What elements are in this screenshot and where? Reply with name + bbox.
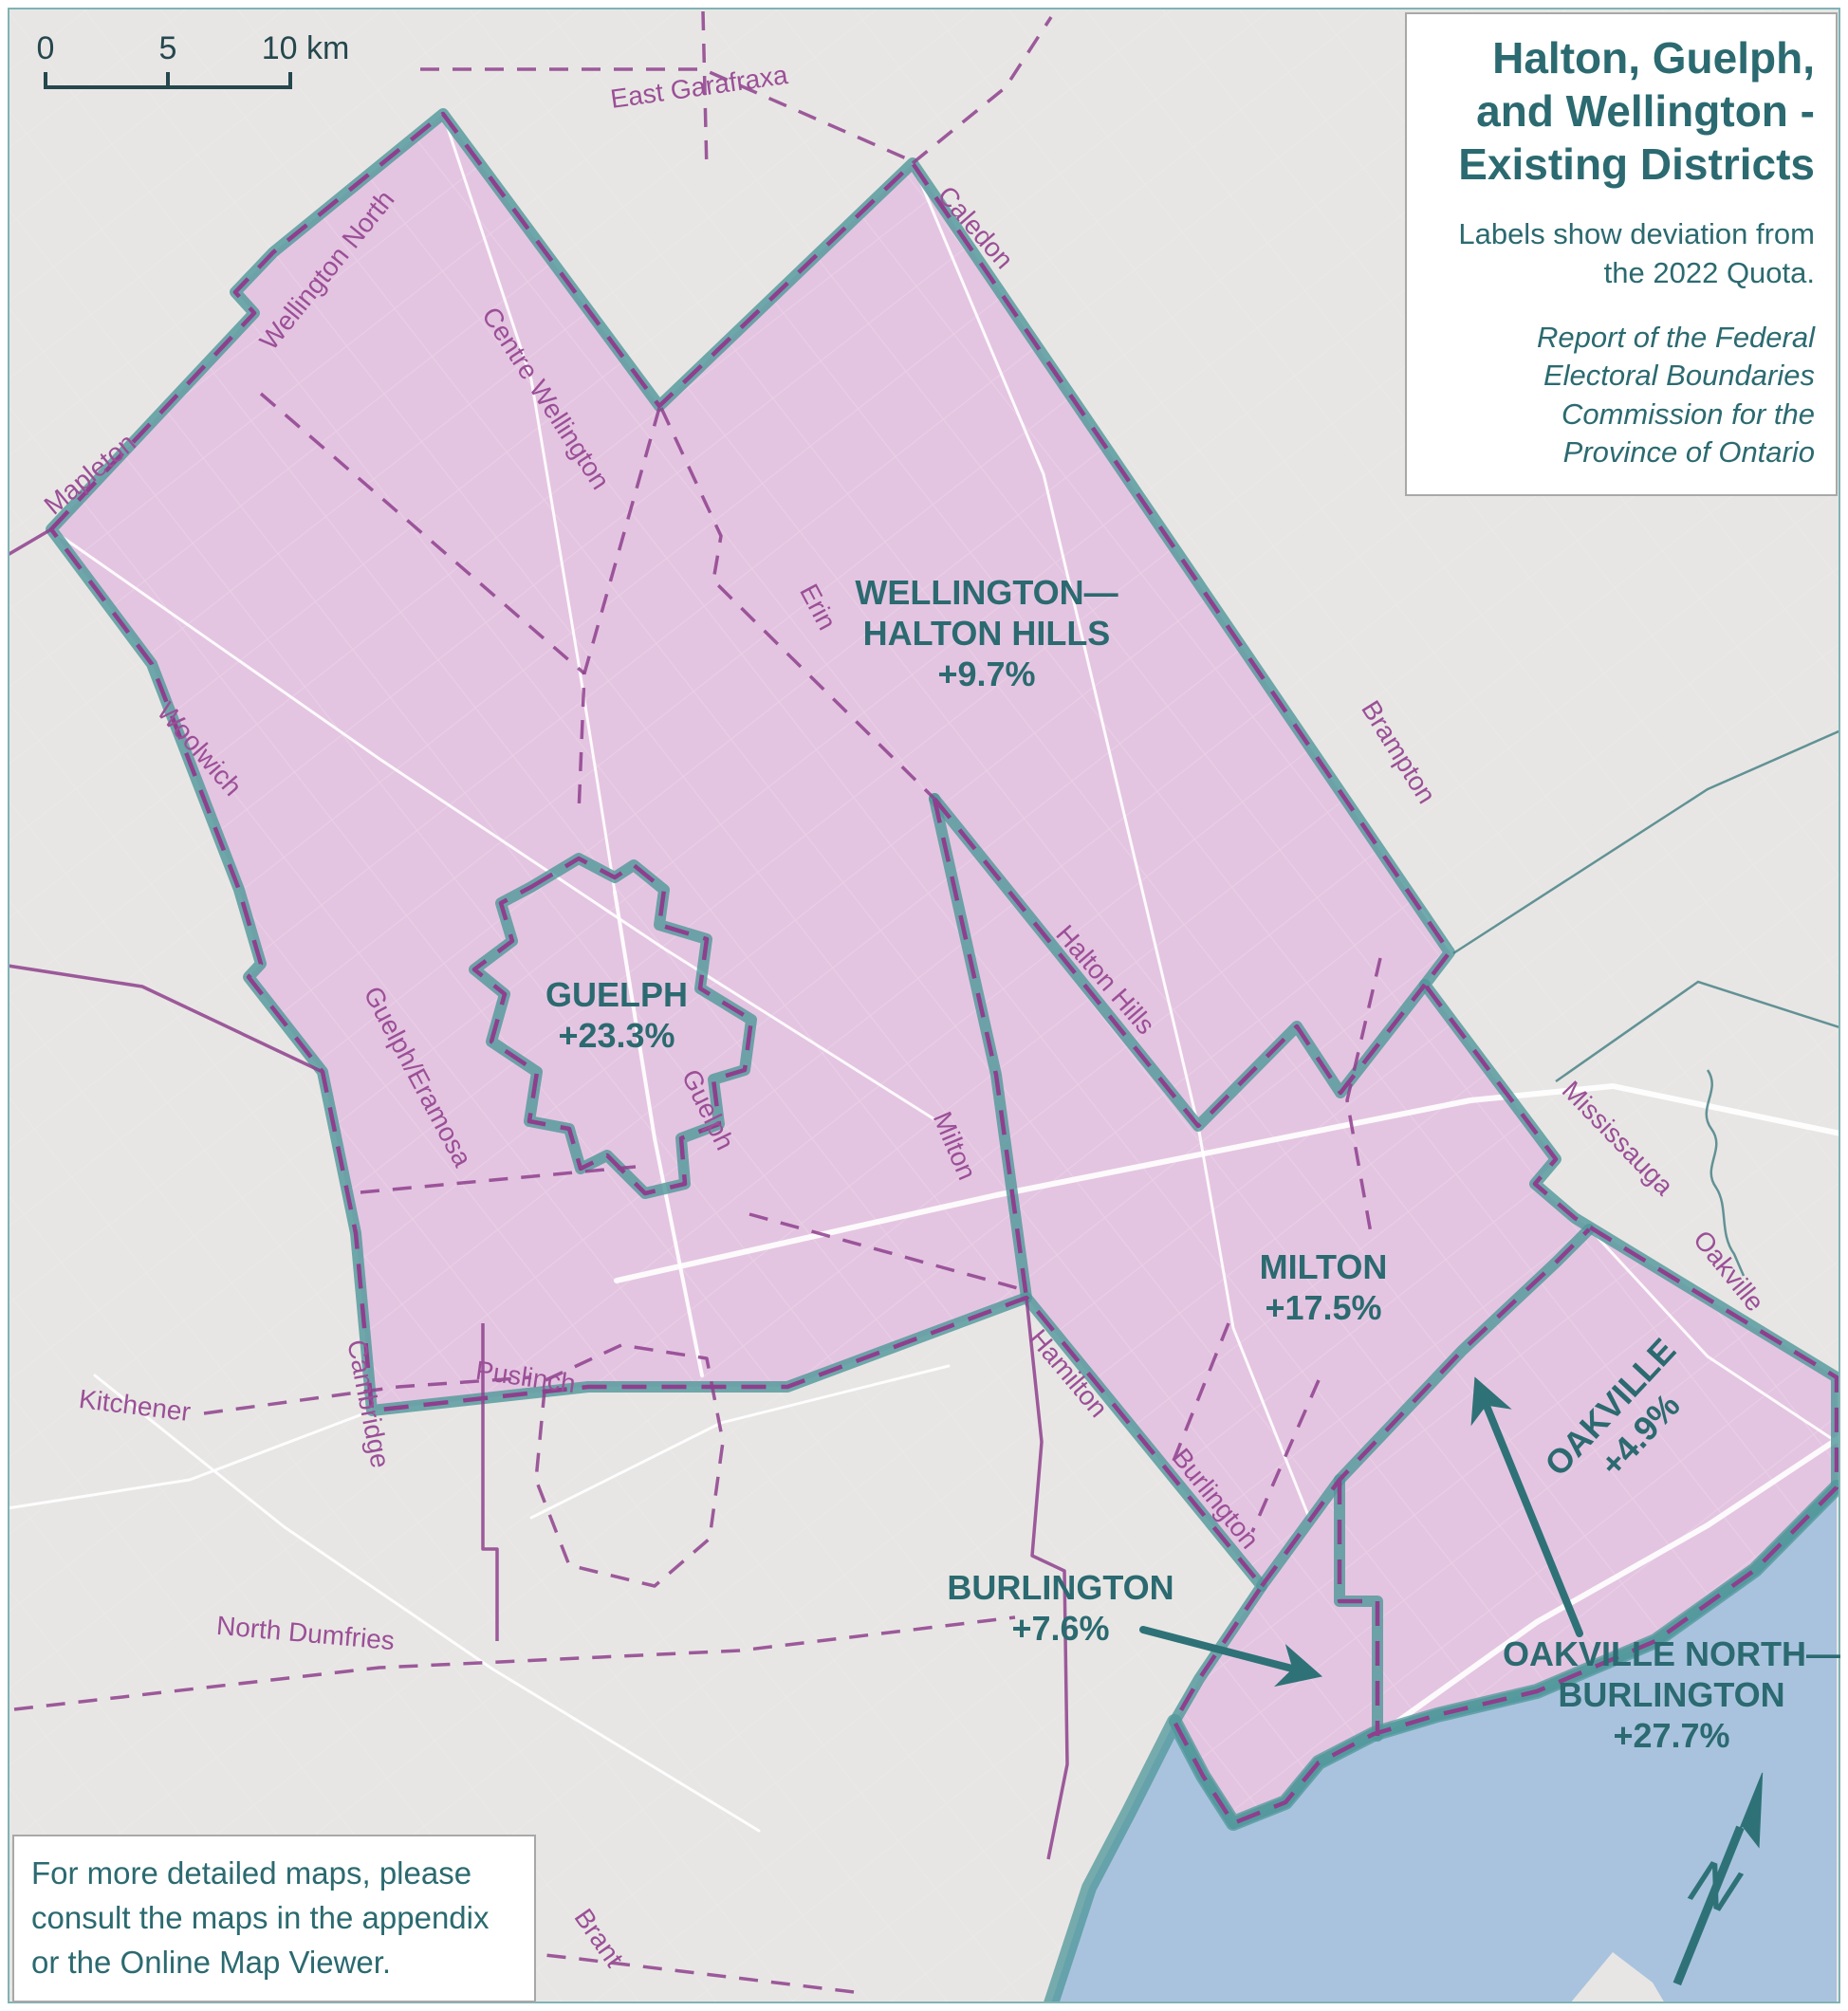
- map-page: N 0 5 10 km WELLINGTON— HALTON HILLS +9.…: [0, 0, 1848, 2011]
- deviation-value: +17.5%: [1260, 1287, 1388, 1328]
- district-label-milton: MILTON +17.5%: [1260, 1246, 1388, 1328]
- scale-10km: 10 km: [262, 30, 350, 66]
- district-label-oakville-north-burlington: OAKVILLE NORTH— BURLINGTON +27.7%: [1503, 1633, 1840, 1757]
- map-title-card: Halton, Guelph, and Wellington - Existin…: [1405, 12, 1838, 496]
- district-label-guelph: GUELPH +23.3%: [545, 974, 688, 1056]
- deviation-value: +9.7%: [855, 655, 1118, 695]
- map-source-note: Report of the Federal Electoral Boundari…: [1424, 319, 1815, 471]
- district-label-wellington-halton-hills: WELLINGTON— HALTON HILLS +9.7%: [855, 572, 1118, 695]
- deviation-value: +23.3%: [545, 1015, 688, 1056]
- deviation-value: +7.6%: [947, 1608, 1173, 1649]
- deviation-value: +27.7%: [1503, 1716, 1840, 1757]
- scale-5: 5: [159, 30, 177, 66]
- map-subtitle: Labels show deviation from the 2022 Quot…: [1424, 215, 1815, 292]
- district-label-burlington: BURLINGTON +7.6%: [947, 1567, 1173, 1649]
- appendix-note-card: For more detailed maps, please consult t…: [12, 1835, 536, 2002]
- map-title: Halton, Guelph, and Wellington - Existin…: [1424, 31, 1815, 191]
- scale-0: 0: [37, 30, 55, 66]
